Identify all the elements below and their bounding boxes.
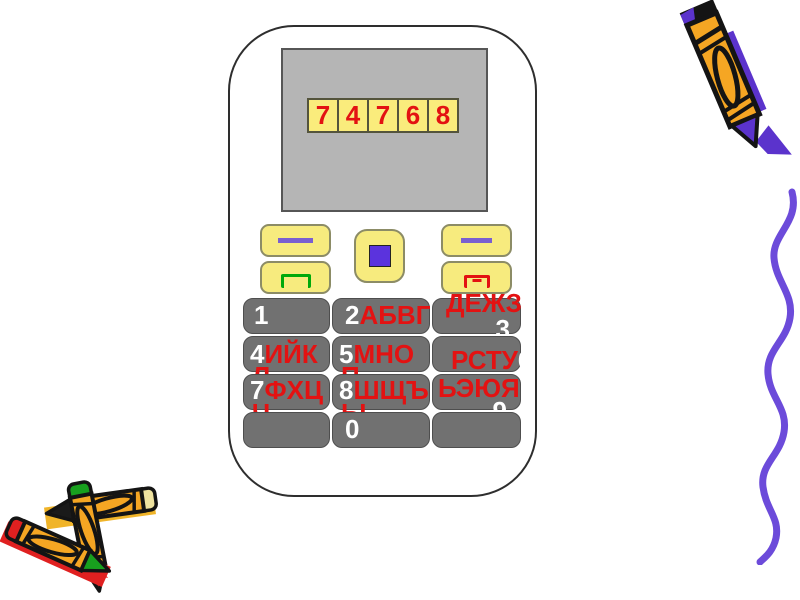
purple-dash-icon [278,238,313,243]
key-letters: ДЕЖЗ [446,290,522,317]
end-call-handset-icon [464,275,490,288]
call-handset-icon [281,274,311,288]
crayon-illustration-top-right [640,0,800,210]
phone-body: 7 4 7 6 8 1 2АБВГ [228,25,537,497]
display-digit: 4 [337,98,369,133]
key-letters: МНО [353,341,414,368]
purple-squiggle-line [720,180,800,565]
keypad-key-5[interactable]: 5МНО П [332,336,430,372]
center-select-button[interactable] [354,229,405,283]
keypad-key-9[interactable]: ЬЭЮЯ 9 [432,374,521,410]
purple-square-icon [369,245,391,267]
keypad-key-8[interactable]: 8ШЩЪ Ы [332,374,430,410]
left-softkey-button[interactable] [260,224,331,257]
right-softkey-button[interactable] [441,224,512,257]
keypad-key-1[interactable]: 1 [243,298,330,334]
crayons-illustration-bottom-left [0,452,195,600]
key-letters: ФХЦ [264,377,323,404]
key-number: 1 [254,302,268,329]
keypad-key-2[interactable]: 2АБВГ [332,298,430,334]
keypad-key-7[interactable]: 7ФХЦ Ч [243,374,330,410]
key-number: 0 [345,416,359,443]
key-number: 6 [518,347,532,374]
keypad-key-4[interactable]: 4ИЙК Л [243,336,330,372]
dialed-number-display: 7 4 7 6 8 [307,98,459,133]
key-letters: ИЙК [264,341,317,368]
key-letters: РСТУ [451,347,518,374]
key-number: 2 [345,302,359,329]
display-digit: 7 [307,98,339,133]
keypad-key-3[interactable]: ДЕЖЗ 3 [432,298,521,334]
key-letters: АБВГ [359,302,430,329]
display-digit: 8 [427,98,459,133]
keypad-key-0[interactable]: 0 [332,412,430,448]
keypad-key-blank-right[interactable] [432,412,521,448]
purple-dash-icon [461,238,492,243]
display-digit: 6 [397,98,429,133]
slide: 7 4 7 6 8 1 2АБВГ [0,0,800,600]
display-digit: 7 [367,98,399,133]
keypad-key-blank-left[interactable] [243,412,330,448]
key-letters: ЬЭЮЯ [438,375,520,402]
phone-screen: 7 4 7 6 8 [281,48,488,212]
call-button[interactable] [260,261,331,294]
keypad-key-6[interactable]: РСТУ6 [432,336,521,372]
